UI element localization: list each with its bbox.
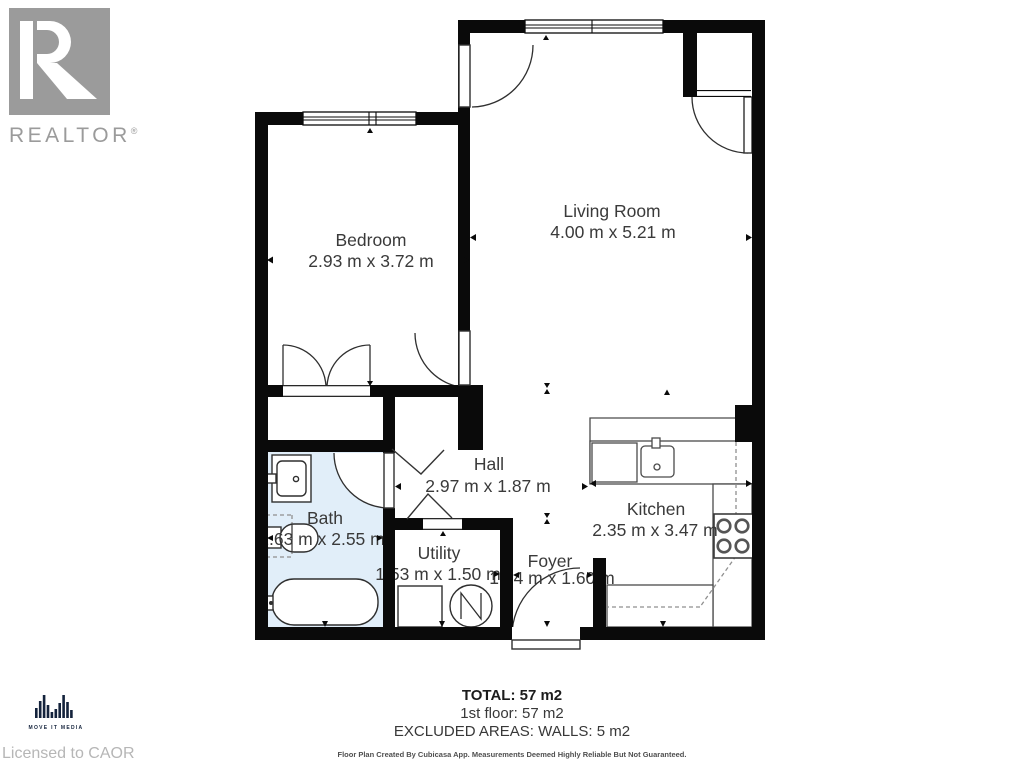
- media-wordmark: MOVE IT MEDIA: [27, 725, 85, 731]
- living-room-dims: 4.00 m x 5.21 m: [550, 222, 675, 242]
- water-heater-icon: [450, 585, 492, 627]
- living-room-label: Living Room: [563, 201, 660, 221]
- licensed-text: Licensed to CAOR: [2, 745, 135, 763]
- media-bars-icon: [27, 694, 85, 719]
- balcony-door-leaf: [459, 45, 470, 107]
- entry-door: [512, 627, 580, 649]
- bathtub-icon: [264, 579, 378, 625]
- closet-opening: [697, 90, 751, 97]
- kitchen-dims: 2.35 m x 3.47 m: [592, 520, 717, 540]
- bath-dims: 1.63 m x 2.55 m: [259, 529, 384, 549]
- bedroom-window: [303, 112, 416, 125]
- kitchen-label: Kitchen: [627, 499, 685, 519]
- floor-plan-page: REALTOR®: [0, 0, 1024, 768]
- disclaimer: Floor Plan Created By Cubicasa App. Meas…: [0, 750, 1024, 759]
- bedroom-dims: 2.93 m x 3.72 m: [308, 251, 433, 271]
- total-area: TOTAL: 57 m2: [0, 687, 1024, 704]
- bedroom-label: Bedroom: [335, 230, 406, 250]
- hall-label: Hall: [474, 454, 504, 474]
- floor-plan-drawing: Bedroom 2.93 m x 3.72 m Living Room 4.00…: [0, 0, 1024, 768]
- floor-area: 1st floor: 57 m2: [0, 705, 1024, 722]
- hall-dims: 2.97 m x 1.87 m: [425, 476, 550, 496]
- washer-icon: [398, 586, 442, 627]
- bedroom-door-leaf: [459, 331, 470, 385]
- bedroom-closet-opening: [283, 385, 370, 397]
- bath-door-leaf: [384, 453, 394, 508]
- utility-label: Utility: [418, 543, 461, 563]
- area-summary: TOTAL: 57 m2 1st floor: 57 m2 EXCLUDED A…: [0, 687, 1024, 759]
- bath-label: Bath: [307, 508, 343, 528]
- move-it-media-logo: MOVE IT MEDIA: [27, 694, 85, 731]
- excluded-areas: EXCLUDED AREAS: WALLS: 5 m2: [0, 723, 1024, 740]
- stove-icon: [714, 514, 753, 558]
- utility-opening: [423, 518, 462, 530]
- living-room-window: [525, 20, 663, 33]
- bath-vanity-icon: [265, 455, 311, 502]
